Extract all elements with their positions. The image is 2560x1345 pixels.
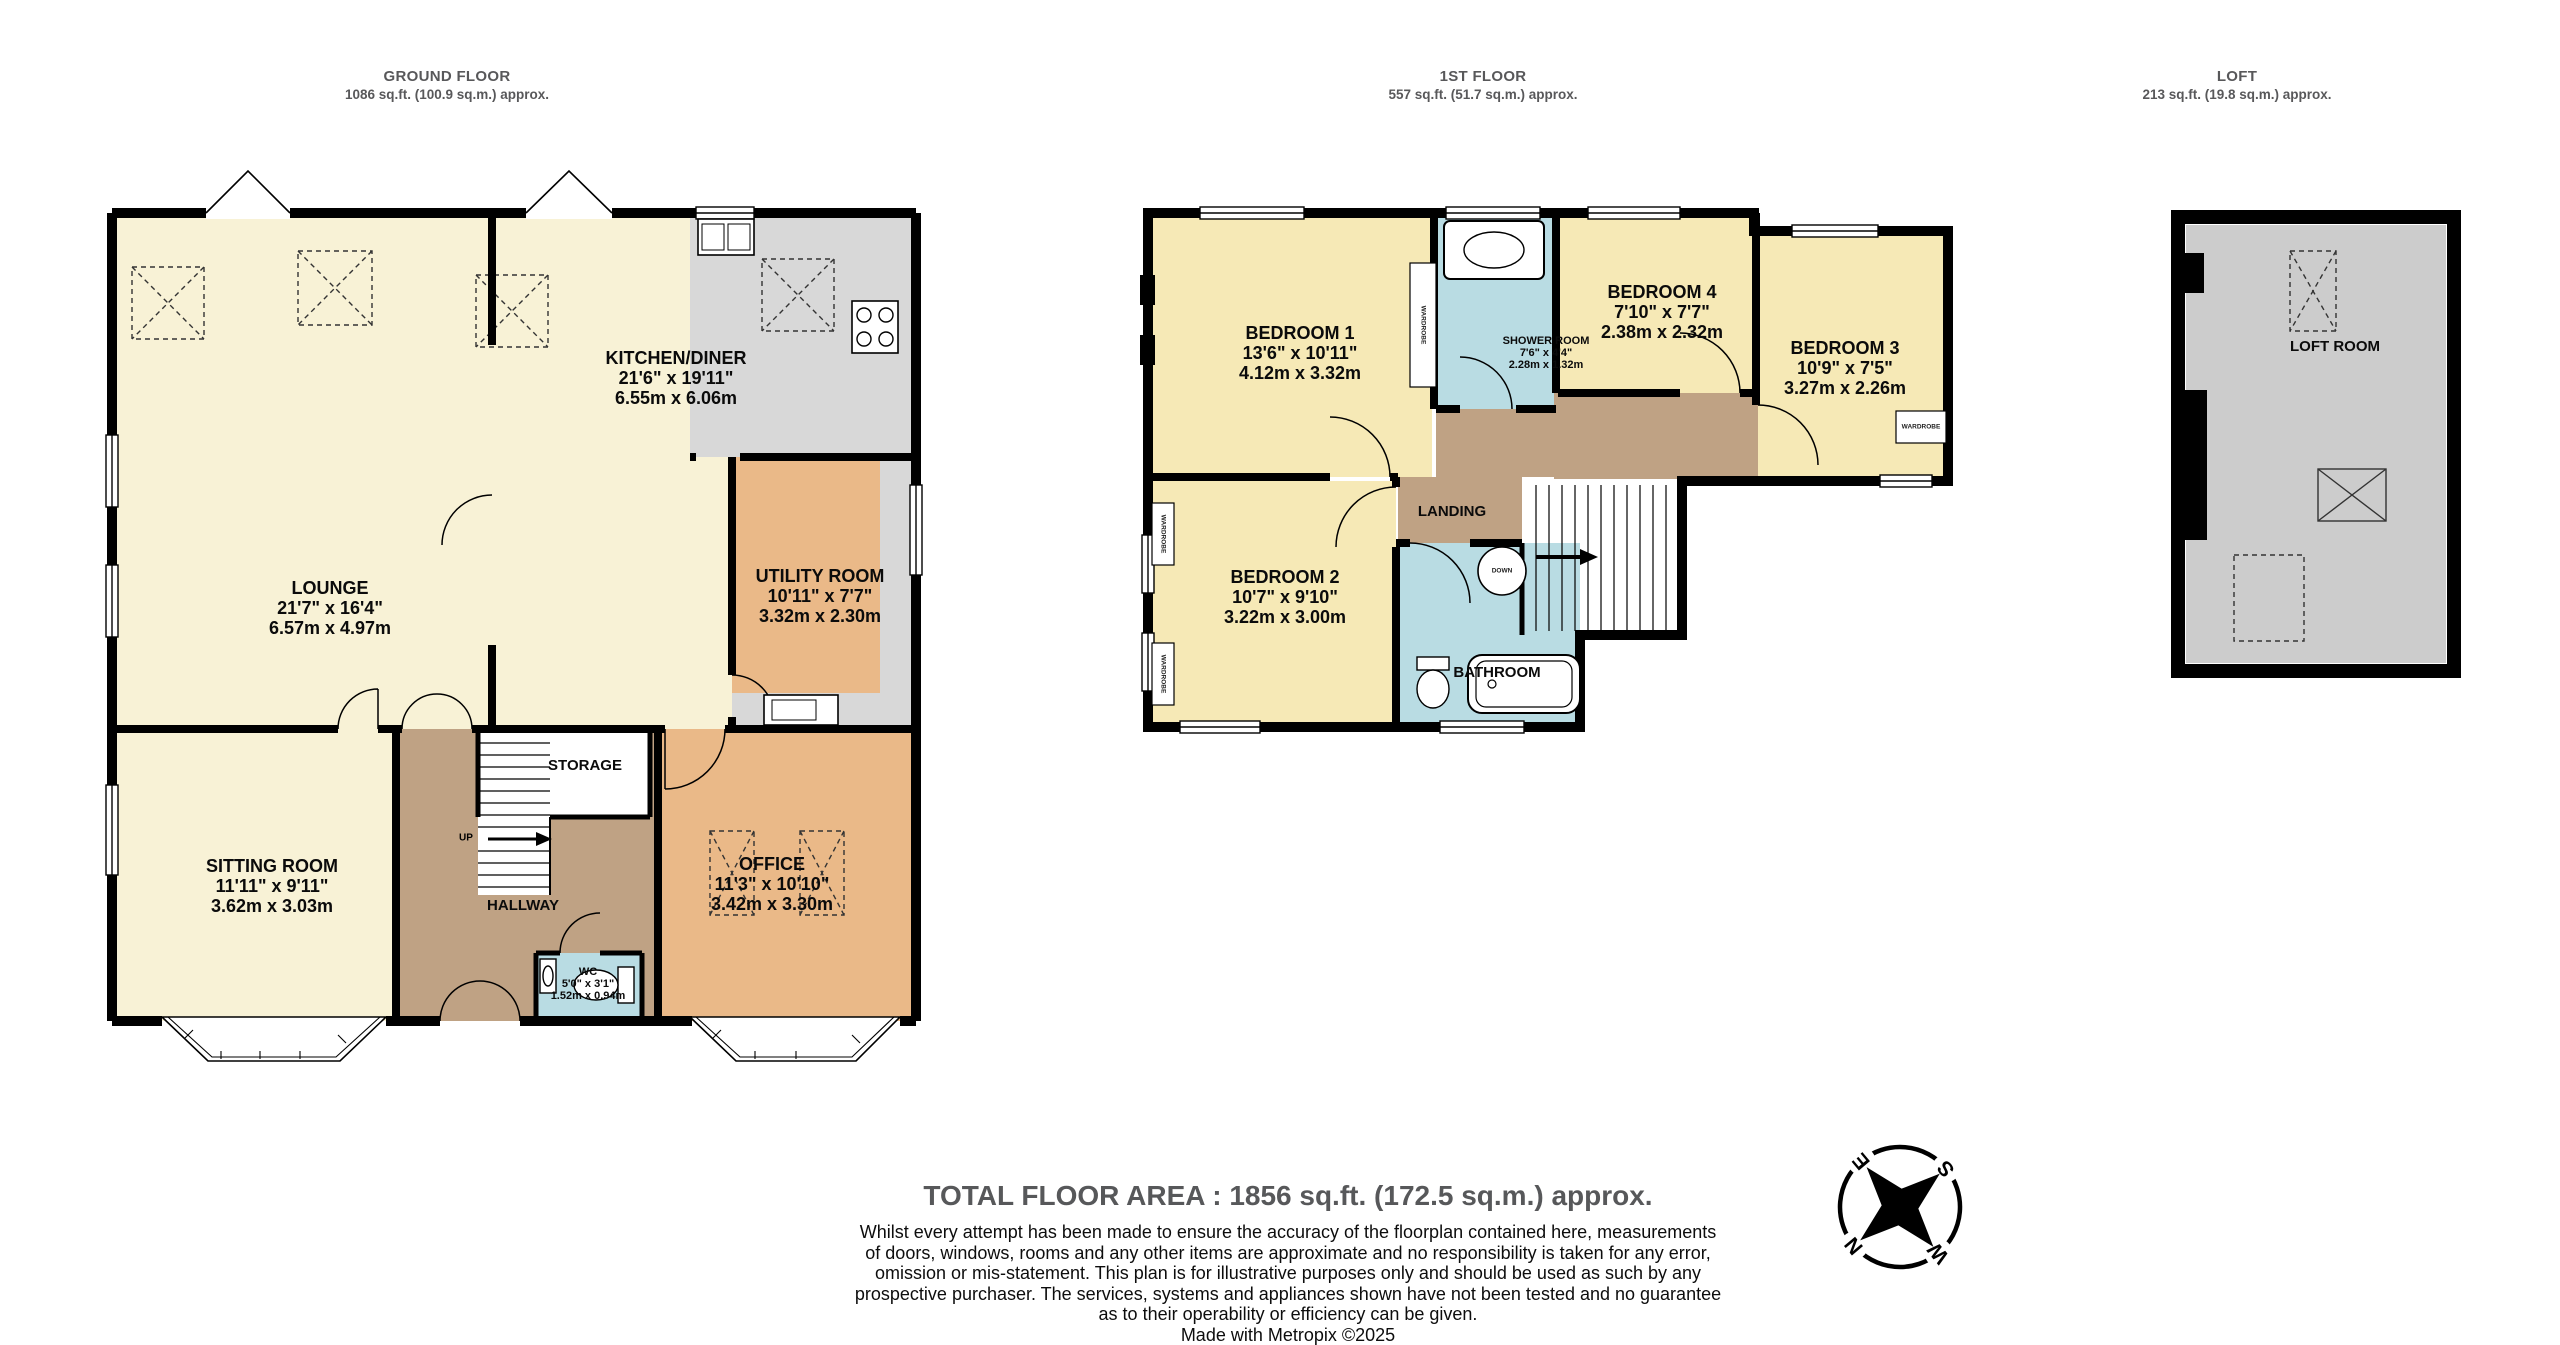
wardrobe-label-bed3: WARDROBE <box>1902 424 1941 431</box>
ground-floor-area: 1086 sq.ft. (100.9 sq.m.) approx. <box>345 87 549 102</box>
total-floor-area: TOTAL FLOOR AREA : 1856 sq.ft. (172.5 sq… <box>923 1180 1652 1212</box>
loft-room-label: LOFT ROOM <box>2290 339 2380 355</box>
first-floor-title: 1ST FLOOR <box>1388 68 1577 85</box>
loft-header: LOFT 213 sq.ft. (19.8 sq.m.) approx. <box>2142 68 2331 102</box>
shower-sink-icon <box>1444 221 1544 279</box>
shower-room-label: SHOWER ROOM 7'6" x 4'4" 2.28m x 1.32m <box>1503 335 1590 371</box>
kitchen-diner-label: KITCHEN/DINER 21'6" x 19'11" 6.55m x 6.0… <box>605 348 746 408</box>
ground-floor-header: GROUND FLOOR 1086 sq.ft. (100.9 sq.m.) a… <box>345 68 549 102</box>
storage-label: STORAGE <box>548 758 622 774</box>
landing-label: LANDING <box>1418 504 1486 520</box>
ground-stairs-area <box>478 817 550 895</box>
loft-room-area <box>2186 225 2446 663</box>
compass-rose: N E S W <box>1818 1125 1983 1290</box>
toilet-icon <box>1417 657 1449 708</box>
loft-chimney <box>2171 390 2207 540</box>
bedroom3-label: BEDROOM 3 10'9" x 7'5" 3.27m x 2.26m <box>1784 338 1906 398</box>
bathroom-label: BATHROOM <box>1453 665 1540 681</box>
lounge-area <box>112 213 492 729</box>
first-floor-area: 557 sq.ft. (51.7 sq.m.) approx. <box>1388 87 1577 102</box>
up-label: UP <box>459 833 473 844</box>
sitting-room-label: SITTING ROOM 11'11" x 9'11" 3.62m x 3.03… <box>206 856 338 916</box>
disclaimer: Whilst every attempt has been made to en… <box>855 1222 1721 1345</box>
loft-plan <box>2170 205 2470 695</box>
sitting-room-bay-window <box>162 1017 386 1061</box>
office-bay-window <box>690 1017 900 1061</box>
bedroom2-label: BEDROOM 2 10'7" x 9'10" 3.22m x 3.00m <box>1224 567 1346 627</box>
bedroom1-label: BEDROOM 1 13'6" x 10'11" 4.12m x 3.32m <box>1239 323 1361 383</box>
external-door-symbols <box>206 171 612 213</box>
ground-floor-title: GROUND FLOOR <box>345 68 549 85</box>
first-floor-header: 1ST FLOOR 557 sq.ft. (51.7 sq.m.) approx… <box>1388 68 1577 102</box>
wc-label: WC 5'0" x 3'1" 1.52m x 0.94m <box>551 966 626 1002</box>
utility-room-label: UTILITY ROOM 10'11" x 7'7" 3.32m x 2.30m <box>756 566 885 626</box>
wardrobe-label-shower: WARDROBE <box>1420 306 1427 345</box>
down-label: DOWN <box>1492 568 1513 575</box>
stove-icon <box>852 301 898 353</box>
utility-sink-icon <box>764 695 838 725</box>
loft-title: LOFT <box>2142 68 2331 85</box>
wardrobe-label-bed2-lower: WARDROBE <box>1160 655 1167 694</box>
lounge-label: LOUNGE 21'7" x 16'4" 6.57m x 4.97m <box>269 578 391 638</box>
loft-area: 213 sq.ft. (19.8 sq.m.) approx. <box>2142 87 2331 102</box>
hallway-label: HALLWAY <box>487 898 559 914</box>
kitchen-sink-icon <box>698 219 754 255</box>
office-label: OFFICE 11'3" x 10'10" 3.42m x 3.30m <box>711 854 833 914</box>
first-floor-plan <box>1140 205 1960 745</box>
floorplan-page: { "floors": { "ground": {"title": "GROUN… <box>0 0 2560 1338</box>
first-floor-room-fills <box>1152 217 1946 727</box>
wardrobe-label-bed2-upper: WARDROBE <box>1160 515 1167 554</box>
bedroom4-label: BEDROOM 4 7'10" x 7'7" 2.38m x 2.32m <box>1601 282 1723 342</box>
